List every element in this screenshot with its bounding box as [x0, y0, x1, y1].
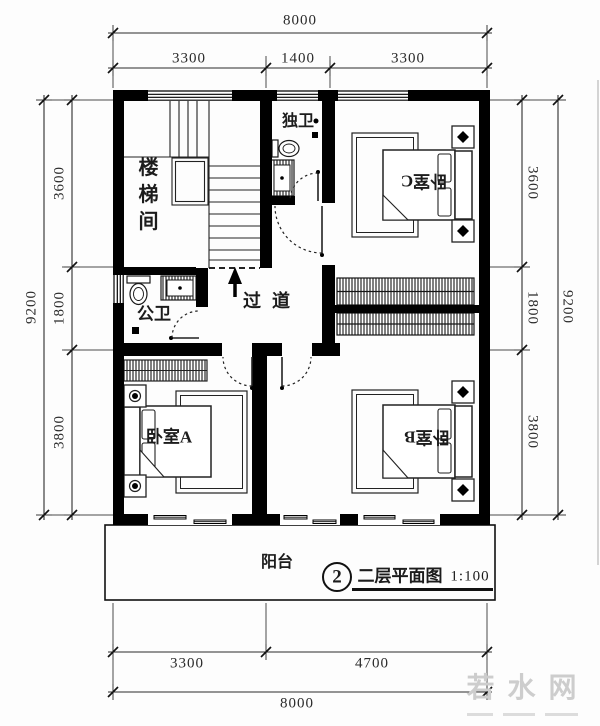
dim-bottom-seg-1: 4700 — [355, 657, 389, 672]
drawing-title: 二层平面图 — [358, 568, 443, 585]
dim-right-seg-2: 3800 — [525, 415, 540, 449]
dim-bottom-seg-0: 3300 — [170, 657, 204, 672]
drawing-scale: 1:100 — [450, 570, 489, 585]
ensuite-bath-fixtures — [270, 119, 319, 197]
window-top-stairwell — [148, 90, 232, 101]
dim-left-seg-1: 1800 — [53, 291, 68, 325]
door-bedroom-c — [275, 206, 324, 257]
dim-right-total: 9200 — [560, 290, 575, 324]
dim-right-seg-0: 3600 — [525, 166, 540, 200]
dim-top-seg-1: 1400 — [281, 52, 315, 67]
dim-top-total: 8000 — [283, 14, 317, 29]
room-label-hallway: 过道 — [243, 292, 301, 310]
room-label-balcony: 阳台 — [261, 555, 293, 571]
dim-right-seg-1: 1800 — [525, 291, 540, 325]
watermark-subtext — [467, 713, 578, 716]
window-left-public-bath — [113, 275, 124, 303]
window-top-ensuite — [277, 90, 318, 101]
room-label-bedroom-a: 卧室A — [146, 429, 192, 446]
dim-left-total: 9200 — [25, 290, 40, 324]
sliding-doors — [148, 514, 440, 525]
door-public-bath — [169, 311, 199, 340]
watermark-text: 若水网 — [466, 675, 589, 703]
floor-plan-canvas: 8000 3300 1400 3300 9200 3600 1800 3800 … — [0, 0, 600, 726]
room-label-stairwell: 楼梯间 — [136, 157, 156, 238]
dim-bottom-total: 8000 — [280, 697, 314, 712]
dim-left-seg-2: 3800 — [53, 415, 68, 449]
door-bedroom-b — [280, 357, 311, 390]
window-top-bedroom-c — [338, 90, 408, 101]
dim-top-seg-2: 3300 — [391, 52, 425, 67]
dim-left-seg-0: 3600 — [53, 166, 68, 200]
room-label-ensuite-bath: 独卫 — [282, 114, 314, 130]
room-label-public-bath: 公卫 — [137, 306, 171, 323]
figure-number: 2 — [332, 568, 342, 587]
dim-top-seg-0: 3300 — [172, 52, 206, 67]
stair-up-arrow — [228, 267, 242, 297]
room-label-bedroom-b: 卧室B — [404, 429, 449, 446]
room-label-bedroom-c: 卧室C — [401, 173, 447, 190]
floor-plan-drawing — [0, 0, 600, 726]
door-bedroom-a — [223, 357, 254, 390]
